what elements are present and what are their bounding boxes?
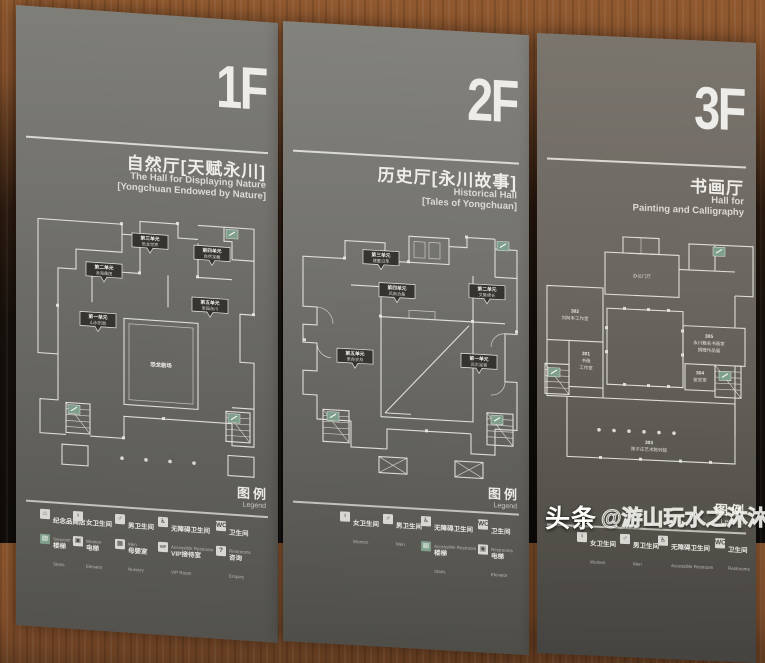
restroom-icon: WC (715, 538, 725, 548)
legend-item: ♿ 无障碍卫生间 Accessible Restroom (658, 535, 713, 574)
svg-text:书画: 书画 (582, 357, 591, 364)
floor-number-label: 2F (467, 70, 517, 133)
signage-panel-1f: 1F 自然厅[天赋永川] The Hall for Displaying Nat… (16, 5, 278, 643)
elevator-icon: ▣ (478, 544, 488, 555)
svg-text:305: 305 (705, 334, 713, 340)
floor-plan-2f: 第三单元 建置沿革 第四单元 风雨沧桑 第二单元 文脉绵长 第五单元 革命岁月 … (291, 217, 523, 482)
restroom-icon: WC (478, 519, 488, 530)
svg-text:刘阿本工作室: 刘阿本工作室 (562, 314, 589, 322)
floor-number-label: 1F (216, 57, 266, 120)
floor-plan-1f: 第三单元 恐龙世界 第四单元 自然宝藏 第二单元 沧海桑田 第五单元 家园永川 … (28, 202, 260, 480)
unit-callout-5: 第五单元 革命岁月 (337, 348, 373, 369)
svg-text:301: 301 (582, 351, 590, 357)
vip-room-icon: VIP (158, 542, 168, 553)
legend-item: ▦ 母婴室 Nursery (115, 539, 148, 577)
svg-text:陈子庄艺术陈列馆: 陈子庄艺术陈列馆 (631, 445, 667, 454)
legend-item: ▤ 楼梯 Stairs (40, 534, 66, 572)
souvenir-shop-icon: ⌂ (40, 509, 50, 520)
floor-plan-3f: 办公门厅 302 刘阿本工作室 301 书画 工作室 305 永川籍名书画家 捐… (539, 227, 757, 489)
signage-panel-2f: 2F 历史厅[永川故事] Historical Hall [Tales of Y… (283, 21, 529, 655)
unit-callout-4: 第四单元 自然宝藏 (194, 245, 230, 266)
womens-restroom-icon: ♀ (340, 511, 350, 522)
legend-item: ▣ 电梯 Elevator (73, 536, 103, 574)
legend-item: ♀ 女卫生间 Women (577, 532, 616, 570)
room-303-label: 303 陈子庄艺术陈列馆 (631, 439, 667, 454)
womens-restroom-icon: ♀ (73, 511, 83, 522)
watermark-brand: 头条 (545, 499, 597, 535)
unit-callout-3: 第三单元 建置沿革 (363, 250, 399, 271)
legend-item: VIP VIP接待室 VIP Room (158, 542, 201, 581)
unit-callout-2: 第二单元 沧海桑田 (86, 262, 122, 283)
signage-panel-3f: 3F 书画厅 Hall for Painting and Calligraphy (537, 33, 756, 663)
svg-text:302: 302 (571, 309, 579, 315)
accessible-restroom-icon: ♿ (658, 535, 668, 545)
floor-plan-walls (545, 233, 753, 464)
room-301-label: 301 书画 工作室 (579, 351, 593, 372)
legend-item: ♀ 女卫生间 Women (340, 511, 379, 549)
legend-item: WC 卫生间 Restrooms (715, 538, 750, 576)
center-room-label: 恐龙剧场 (150, 360, 172, 370)
header-divider (547, 157, 746, 168)
unit-callout-1: 第一单元 山水形胜 (80, 311, 116, 332)
watermark: 头条 @游山玩水之沐沐 (545, 499, 765, 535)
stair-hatching (545, 357, 741, 402)
accessible-restroom-icon: ♿ (158, 517, 168, 528)
restroom-icon: WC (216, 521, 226, 532)
legend-item: ▤ 楼梯 Stairs (421, 541, 447, 578)
legend-item: ♂ 男卫生间 Men (620, 534, 659, 572)
legend-divider (293, 501, 519, 516)
emergency-exit-icon (327, 232, 509, 431)
svg-text:304: 304 (696, 370, 704, 376)
floor-number-label: 3F (694, 78, 744, 140)
svg-text:捐赠作品展: 捐赠作品展 (698, 346, 721, 354)
svg-text:鉴定室: 鉴定室 (693, 376, 707, 384)
unit-callout-5: 第五单元 家园永川 (192, 297, 228, 318)
office-lobby-label: 办公门厅 (633, 272, 651, 280)
unit-callout-3: 第三单元 恐龙世界 (132, 233, 168, 254)
legend-title: 图例 Legend (488, 483, 517, 511)
elevator-icon: ▣ (73, 536, 83, 547)
entrance-dots (120, 456, 196, 465)
legend-item: ? 咨询 Enquiry (216, 546, 244, 584)
mens-restroom-icon: ♂ (115, 514, 125, 525)
unit-callout-2: 第二单元 文脉绵长 (469, 284, 505, 305)
unit-callout-4: 第四单元 风雨沧桑 (379, 283, 415, 304)
svg-text:工作室: 工作室 (579, 364, 593, 372)
svg-text:303: 303 (645, 440, 653, 446)
nursery-icon: ▦ (115, 539, 125, 550)
legend-title: 图例 Legend (237, 482, 266, 510)
room-305-label: 305 永川籍名书画家 捐赠作品展 (693, 333, 725, 354)
unit-callout-1: 第一单元 远古足音 (461, 353, 497, 374)
legend-item: ♂ 男卫生间 Men (383, 514, 422, 552)
room-304-label: 304 鉴定室 (693, 370, 707, 384)
watermark-handle: @游山玩水之沐沐 (601, 502, 765, 532)
svg-text:永川籍名书画家: 永川籍名书画家 (693, 339, 725, 347)
legend-item: ▣ 电梯 Elevator (478, 544, 508, 582)
entrance-dots (597, 428, 676, 435)
mens-restroom-icon: ♂ (383, 514, 393, 525)
room-302-label: 302 刘阿本工作室 (562, 308, 589, 322)
enquiry-icon: ? (216, 546, 226, 557)
accessible-restroom-icon: ♿ (421, 516, 431, 527)
